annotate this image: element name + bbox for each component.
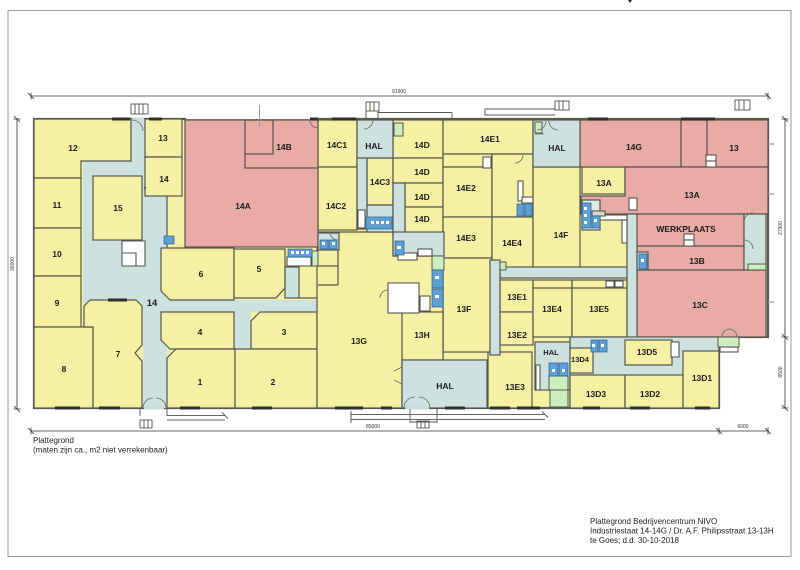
svg-text:2: 2: [271, 377, 276, 387]
svg-text:13D1: 13D1: [692, 373, 713, 383]
svg-text:14D: 14D: [414, 214, 430, 224]
svg-text:T: T: [144, 186, 147, 191]
svg-text:Plattegrond: Plattegrond: [33, 436, 74, 445]
svg-text:14B: 14B: [276, 142, 292, 152]
svg-text:14C1: 14C1: [327, 140, 348, 150]
svg-text:HAL: HAL: [365, 141, 382, 151]
svg-text:14G: 14G: [626, 142, 642, 152]
svg-text:14C3: 14C3: [370, 177, 391, 187]
svg-text:14E1: 14E1: [480, 134, 500, 144]
svg-text:13G: 13G: [351, 336, 367, 346]
svg-text:HAL: HAL: [543, 348, 559, 357]
svg-text:13A: 13A: [684, 190, 700, 200]
svg-text:14E4: 14E4: [502, 238, 522, 248]
svg-text:10: 10: [52, 249, 62, 259]
svg-text:27900: 27900: [778, 221, 784, 235]
svg-text:4: 4: [198, 327, 203, 337]
svg-text:13D2: 13D2: [640, 389, 661, 399]
svg-text:13C: 13C: [692, 300, 708, 310]
svg-text:36000: 36000: [10, 257, 16, 271]
svg-text:13E3: 13E3: [505, 382, 525, 392]
svg-text:5: 5: [257, 264, 262, 274]
svg-text:13: 13: [729, 143, 739, 153]
svg-text:11: 11: [53, 200, 62, 210]
svg-text:(maten zijn ca., m2 niet verre: (maten zijn ca., m2 niet verrekenbaar): [33, 446, 168, 455]
svg-text:85000: 85000: [366, 424, 380, 430]
svg-text:14C2: 14C2: [326, 201, 347, 211]
svg-text:14D: 14D: [414, 192, 430, 202]
svg-text:14E3: 14E3: [456, 233, 476, 243]
svg-text:13E2: 13E2: [507, 330, 527, 340]
svg-text:12: 12: [68, 143, 78, 153]
svg-text:1: 1: [198, 377, 203, 387]
svg-text:91900: 91900: [392, 89, 406, 95]
svg-text:14A: 14A: [235, 201, 251, 211]
svg-text:13D4: 13D4: [571, 355, 590, 364]
svg-text:8500: 8500: [778, 366, 784, 377]
svg-text:13E1: 13E1: [507, 292, 527, 302]
svg-text:te Goes; d.d. 30-10-2018: te Goes; d.d. 30-10-2018: [590, 536, 680, 545]
svg-text:6: 6: [199, 269, 204, 279]
svg-text:14D: 14D: [414, 140, 430, 150]
svg-text:6000: 6000: [737, 424, 748, 430]
svg-text:HAL: HAL: [548, 143, 565, 153]
svg-text:WERKPLAATS: WERKPLAATS: [656, 224, 716, 234]
svg-text:7: 7: [116, 349, 121, 359]
svg-text:13E4: 13E4: [542, 304, 562, 314]
svg-text:3: 3: [282, 327, 287, 337]
svg-text:13: 13: [158, 133, 168, 143]
svg-text:Plattegrond Bedrijvencentrum N: Plattegrond Bedrijvencentrum NIVO: [590, 517, 717, 526]
svg-text:13H: 13H: [414, 330, 430, 340]
svg-text:13F: 13F: [457, 304, 472, 314]
svg-text:14: 14: [147, 298, 158, 309]
svg-text:13D5: 13D5: [637, 347, 658, 357]
svg-text:14D: 14D: [414, 167, 430, 177]
svg-text:15: 15: [113, 203, 123, 213]
svg-text:Industriestaat 14-14G / Dr. A.: Industriestaat 14-14G / Dr. A.F. Philips…: [590, 527, 774, 536]
svg-text:13B: 13B: [689, 256, 705, 266]
svg-text:14F: 14F: [554, 230, 569, 240]
svg-text:8: 8: [62, 364, 67, 374]
svg-text:HAL: HAL: [436, 381, 453, 391]
svg-text:9: 9: [55, 298, 60, 308]
svg-text:13E5: 13E5: [589, 304, 609, 314]
svg-text:14: 14: [159, 174, 169, 184]
svg-text:13A: 13A: [596, 178, 612, 188]
svg-text:13D3: 13D3: [586, 389, 607, 399]
svg-text:14E2: 14E2: [456, 183, 476, 193]
